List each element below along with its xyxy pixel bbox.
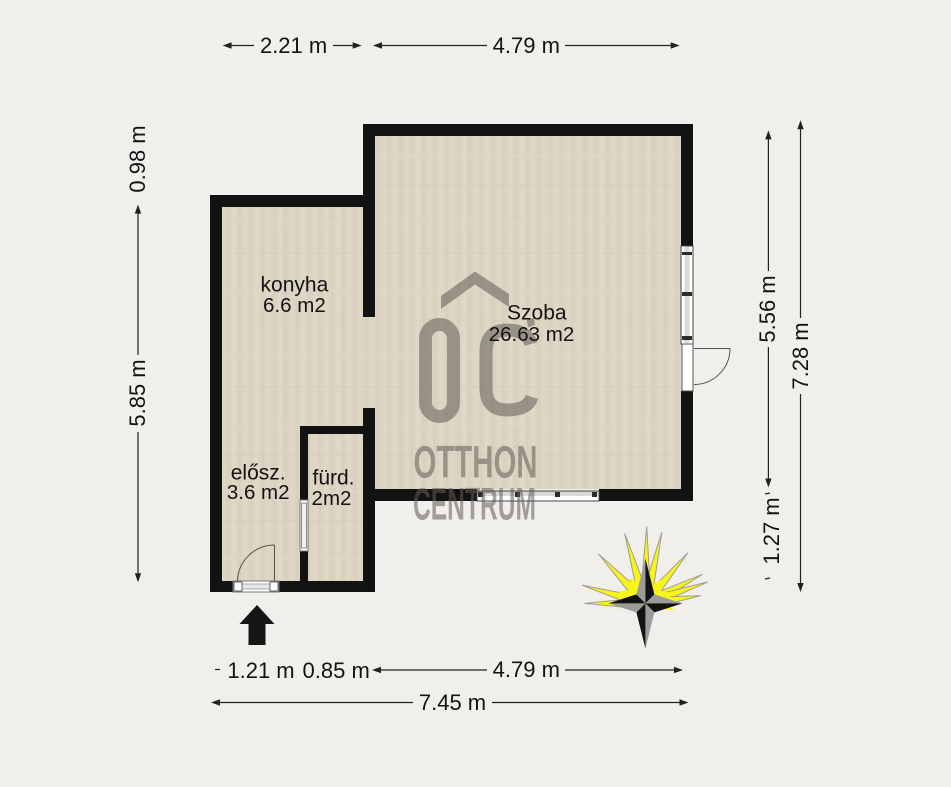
svg-text:CENTRUM: CENTRUM xyxy=(413,479,536,530)
